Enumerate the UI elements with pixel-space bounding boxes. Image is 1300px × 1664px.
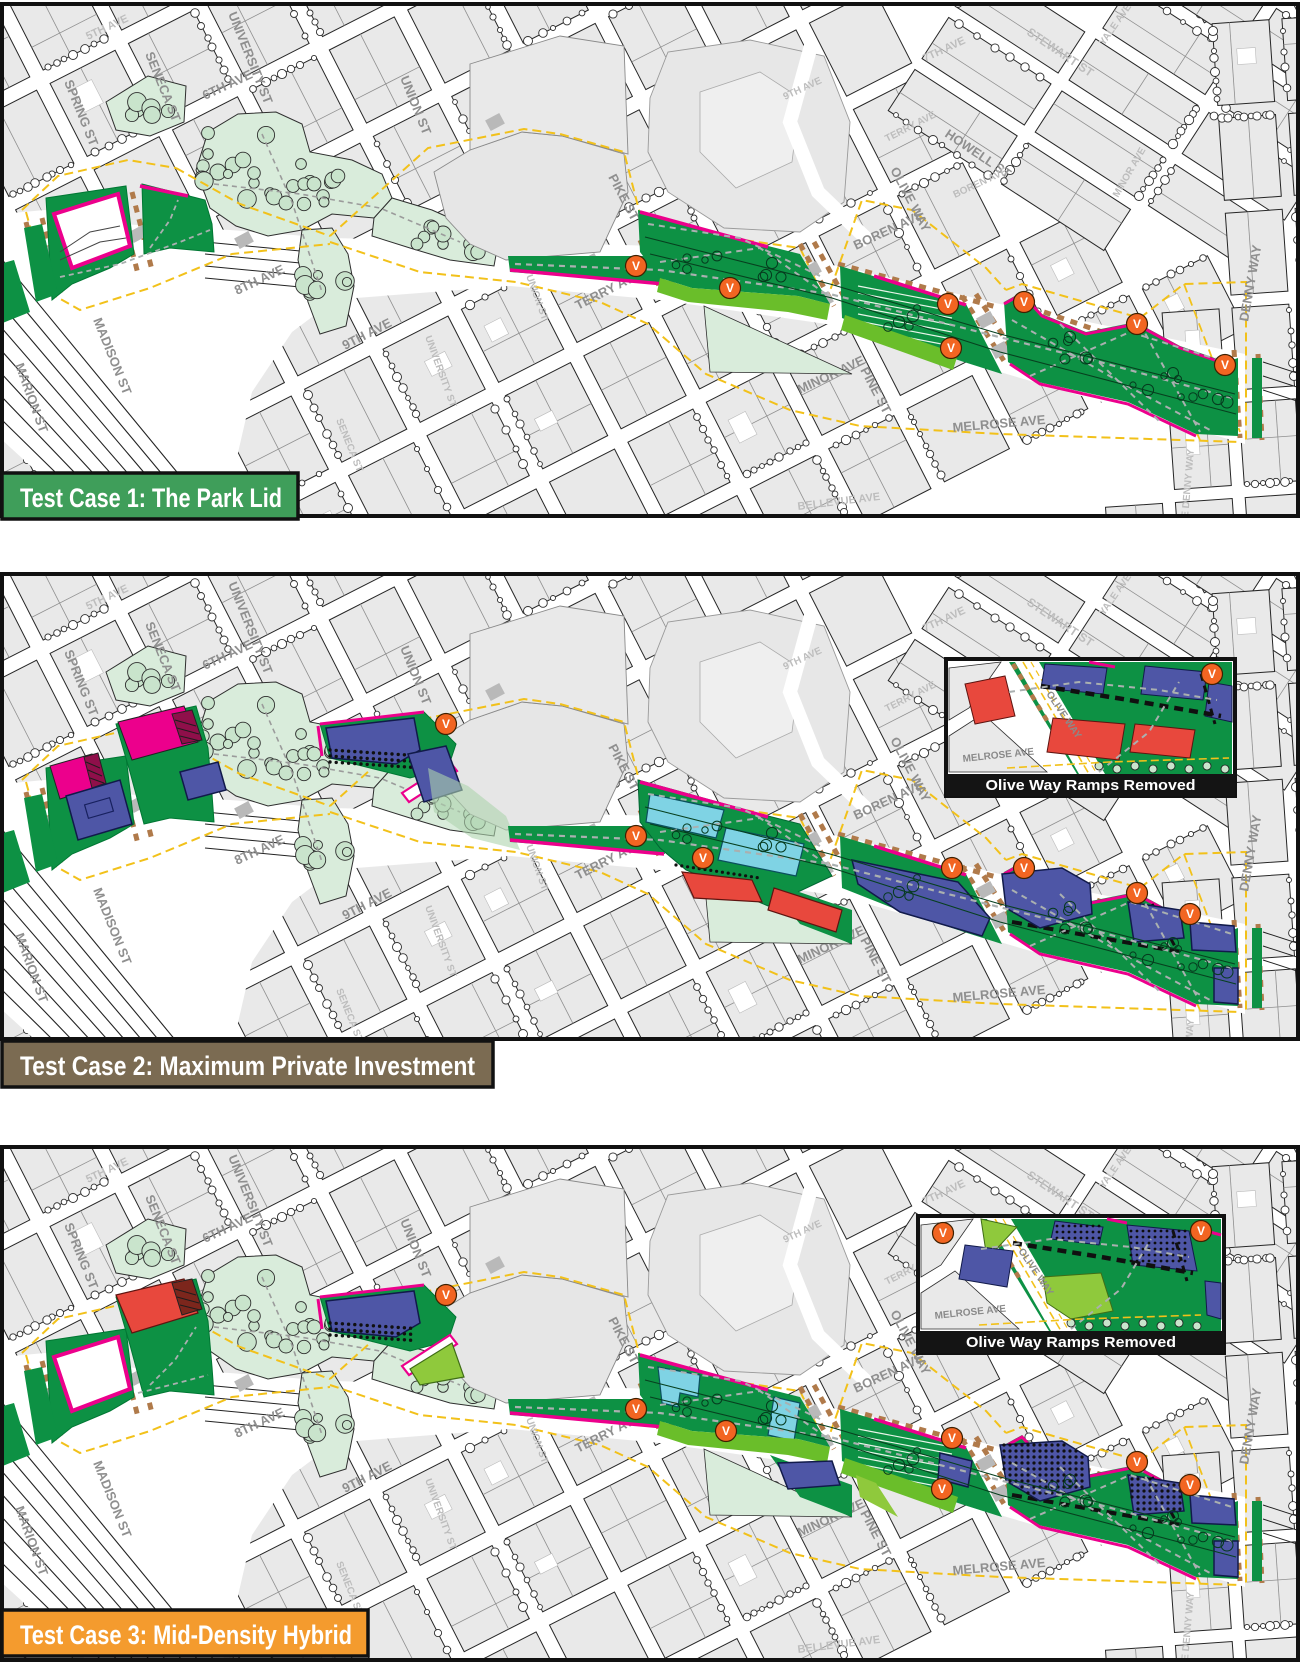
- svg-text:V: V: [1133, 886, 1141, 900]
- svg-text:V: V: [442, 1288, 450, 1302]
- svg-text:Test Case 1: The Park Lid: Test Case 1: The Park Lid: [20, 483, 282, 513]
- svg-text:Olive Way Ramps Removed: Olive Way Ramps Removed: [966, 1334, 1176, 1351]
- svg-text:V: V: [1133, 1455, 1141, 1469]
- svg-text:V: V: [632, 829, 640, 843]
- svg-text:V: V: [947, 341, 955, 355]
- svg-text:V: V: [1020, 861, 1028, 875]
- svg-text:Test Case 2: Maximum Private I: Test Case 2: Maximum Private Investment: [20, 1051, 475, 1081]
- svg-text:Test Case 3: Mid-Density Hybri: Test Case 3: Mid-Density Hybrid: [20, 1620, 352, 1650]
- svg-text:V: V: [442, 717, 450, 731]
- svg-text:V: V: [1208, 667, 1216, 681]
- svg-text:V: V: [1020, 295, 1028, 309]
- svg-text:V: V: [726, 281, 734, 295]
- svg-text:Olive Way Ramps Removed: Olive Way Ramps Removed: [986, 777, 1196, 794]
- svg-text:V: V: [948, 1431, 956, 1445]
- svg-text:V: V: [722, 1424, 730, 1438]
- svg-text:V: V: [632, 259, 640, 273]
- svg-text:V: V: [1133, 317, 1141, 331]
- svg-text:V: V: [1197, 1224, 1205, 1238]
- svg-text:V: V: [632, 1402, 640, 1416]
- svg-text:V: V: [938, 1482, 946, 1496]
- svg-text:V: V: [1221, 358, 1229, 372]
- svg-text:V: V: [1186, 1478, 1194, 1492]
- svg-text:V: V: [944, 297, 952, 311]
- svg-text:V: V: [948, 861, 956, 875]
- svg-text:V: V: [1186, 907, 1194, 921]
- svg-text:BELLEVUE AVE: BELLEVUE AVE: [797, 1061, 881, 1083]
- svg-text:V: V: [699, 851, 707, 865]
- svg-text:V: V: [939, 1226, 947, 1240]
